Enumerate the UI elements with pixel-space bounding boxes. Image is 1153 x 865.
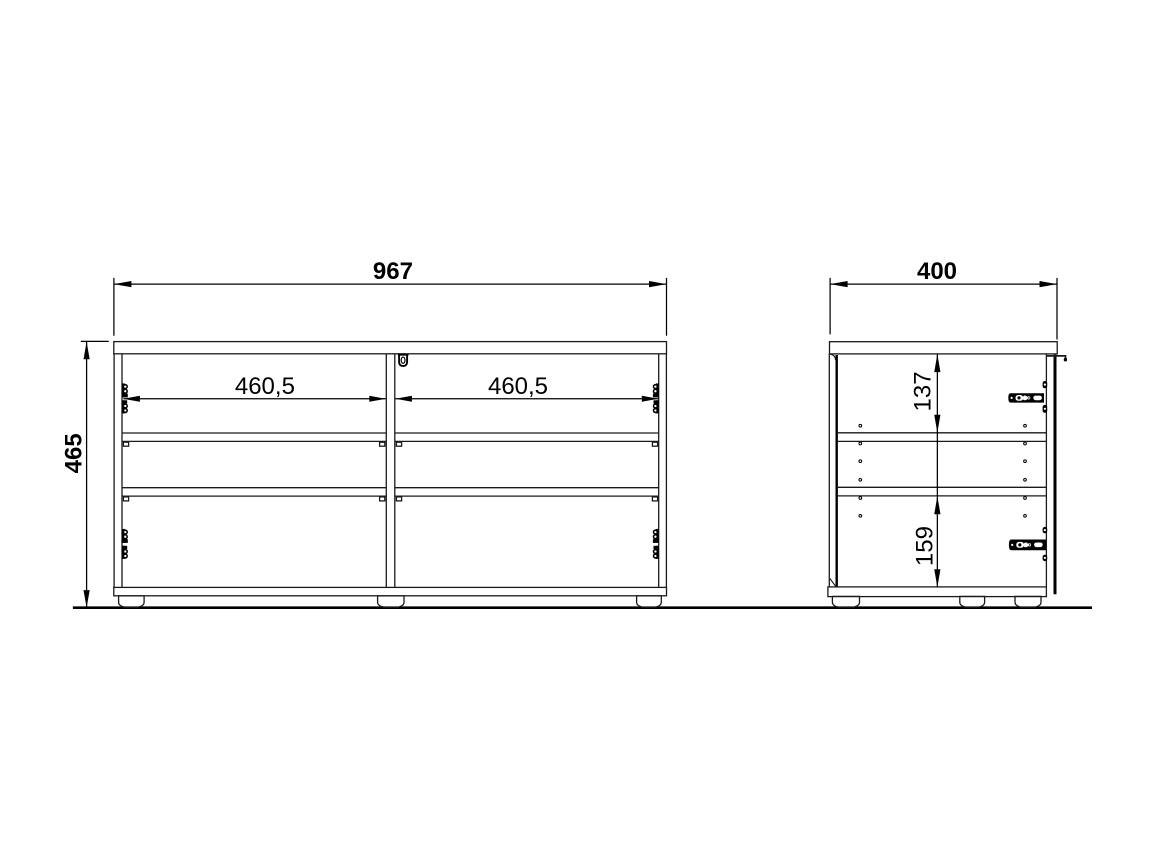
- svg-text:460,5: 460,5: [488, 373, 548, 400]
- svg-text:400: 400: [917, 258, 957, 285]
- svg-text:137: 137: [909, 371, 936, 411]
- svg-text:465: 465: [61, 433, 88, 473]
- svg-text:460,5: 460,5: [235, 373, 295, 400]
- svg-text:967: 967: [373, 258, 413, 285]
- svg-text:159: 159: [912, 526, 939, 566]
